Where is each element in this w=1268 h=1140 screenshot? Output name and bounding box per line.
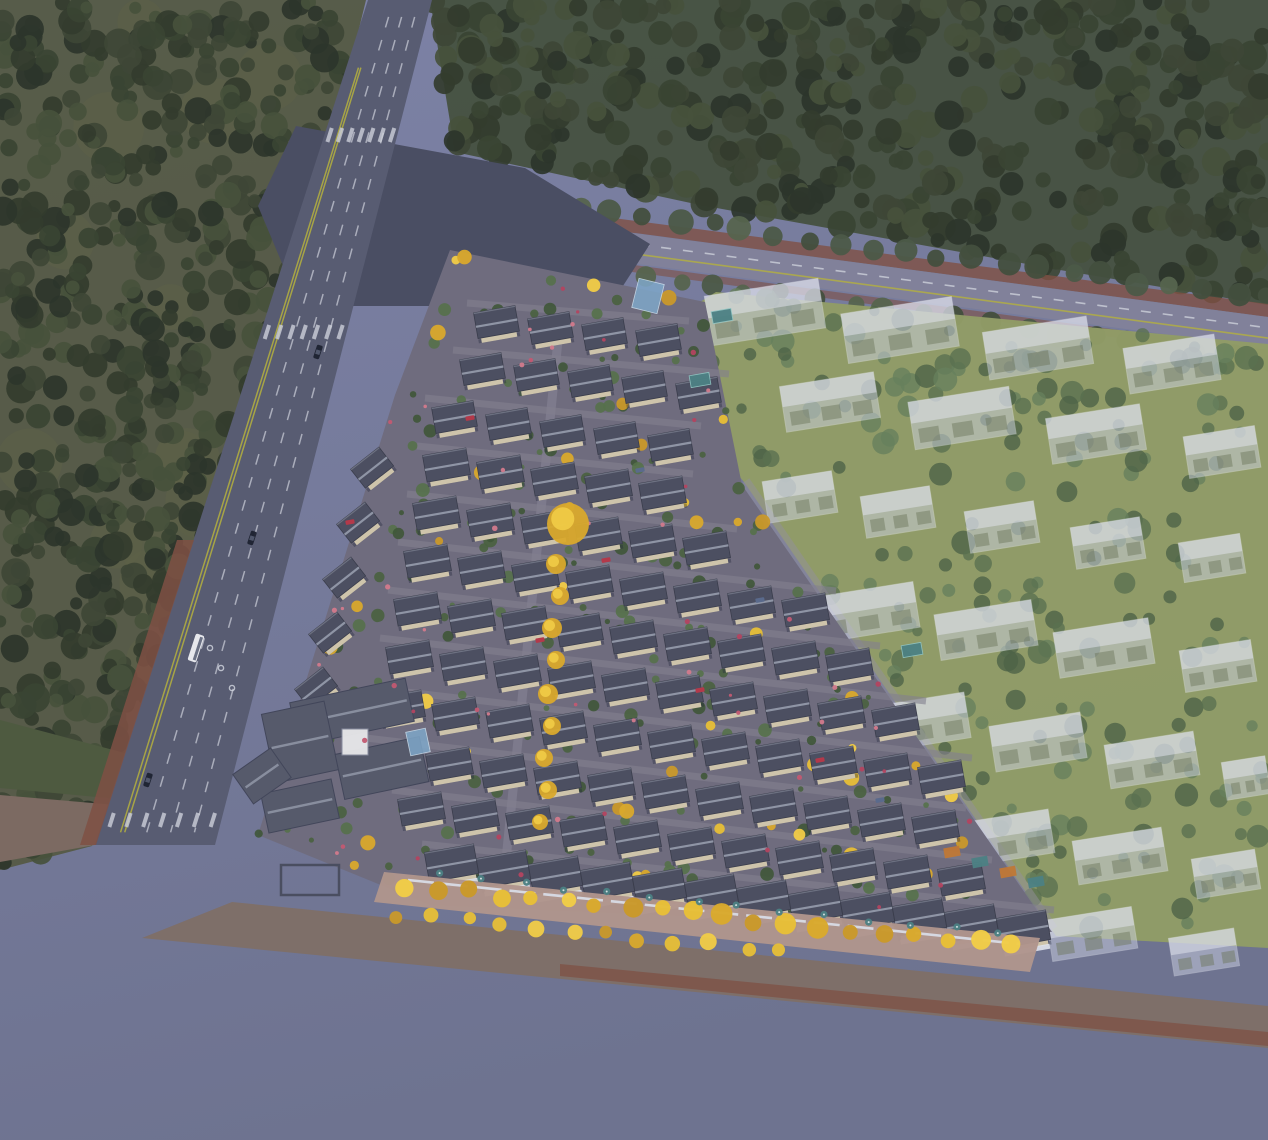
aerial-rendering-scene — [0, 0, 1268, 1140]
rendering-viewport: Residential community master-plan aerial… — [0, 0, 1268, 1140]
